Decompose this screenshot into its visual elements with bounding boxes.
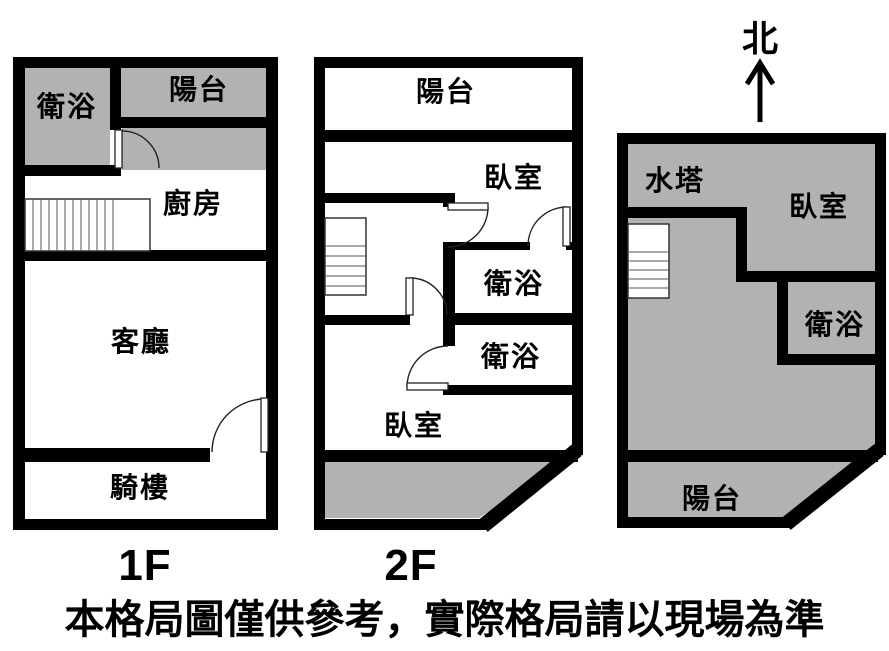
- 3f-wall-bedroom-bottom: [736, 271, 886, 282]
- 2f-wall-left: [314, 57, 325, 530]
- north-label: 北: [742, 21, 778, 57]
- room-label-3f-water-tower: 水塔: [645, 167, 705, 195]
- disclaimer-text: 本格局圖僅供參考，實際格局請以現場為準: [0, 587, 889, 645]
- room-label-3f-bedroom: 臥室: [789, 193, 849, 221]
- room-label-3f-bath: 衛浴: [805, 311, 865, 339]
- north-arrow-icon: [747, 63, 773, 122]
- 1f-wall-bath-right: [110, 68, 121, 130]
- room-label-2f-bath-lower: 衛浴: [481, 343, 541, 371]
- 2f-stairs-icon: [325, 218, 366, 295]
- room-label-2f-bedroom-front: 臥室: [484, 164, 544, 192]
- 1f-wall-left: [13, 57, 25, 530]
- floor-label-1f: 1F: [118, 544, 171, 588]
- 1f-wall-right: [266, 57, 278, 530]
- room-label-1f-kitchen: 廚房: [163, 190, 223, 218]
- 1f-wall-bottom: [13, 519, 278, 530]
- 3f-wall-bedroom-left: [736, 207, 747, 282]
- 3f-wall-bath-left: [777, 282, 788, 365]
- 2f-wall-bath-lower-bottom: [443, 385, 572, 395]
- room-label-3f-balcony: 陽台: [682, 485, 742, 513]
- 2f-wall-top: [314, 57, 583, 68]
- floor-plan-1f: [13, 57, 278, 530]
- 2f-wall-bedroom-stair: [325, 193, 455, 203]
- 2f-wall-bath-divider: [443, 313, 572, 325]
- 3f-wall-right: [875, 133, 886, 455]
- floor-plan-canvas: 衛浴 陽台 廚房 客廳 騎樓 1F 陽台 臥室 衛浴 衛浴 臥室 2F 水塔 臥…: [0, 0, 889, 651]
- room-label-1f-arcade: 騎樓: [110, 474, 170, 502]
- 3f-stairs-icon: [628, 224, 669, 298]
- 3f-wall-bath-bottom: [777, 354, 886, 365]
- 1f-wall-bath-bottom: [25, 165, 121, 176]
- room-label-1f-bath: 衛浴: [37, 93, 97, 121]
- 3f-wall-bottom: [617, 517, 793, 528]
- 2f-wall-vertical-b: [443, 247, 455, 346]
- 3f-wall-water-tower: [628, 207, 747, 218]
- 3f-wall-left: [617, 133, 628, 528]
- 1f-stairs-icon: [25, 199, 150, 251]
- room-label-2f-balcony: 陽台: [416, 78, 476, 106]
- 1f-wall-top: [13, 57, 278, 68]
- 2f-wall-balcony-front: [325, 130, 572, 142]
- room-label-1f-living: 客廳: [111, 328, 171, 356]
- 1f-wall-balcony-bottom: [121, 117, 266, 128]
- 3f-wall-balcony-top: [628, 450, 878, 462]
- floor-label-2f: 2F: [384, 544, 437, 588]
- 1f-entry-strip-area: [122, 128, 266, 170]
- room-label-2f-bath-upper: 衛浴: [484, 270, 544, 298]
- 1f-wall-arcade: [25, 448, 210, 462]
- 2f-wall-balcony-back-top: [325, 450, 578, 462]
- room-label-2f-bedroom-back: 臥室: [384, 412, 444, 440]
- room-label-1f-balcony: 陽台: [169, 76, 229, 104]
- 2f-wall-bottom: [314, 519, 490, 530]
- 2f-wall-hall-bottom: [325, 315, 410, 325]
- 2f-wall-right: [572, 57, 583, 455]
- 3f-wall-top: [617, 133, 886, 144]
